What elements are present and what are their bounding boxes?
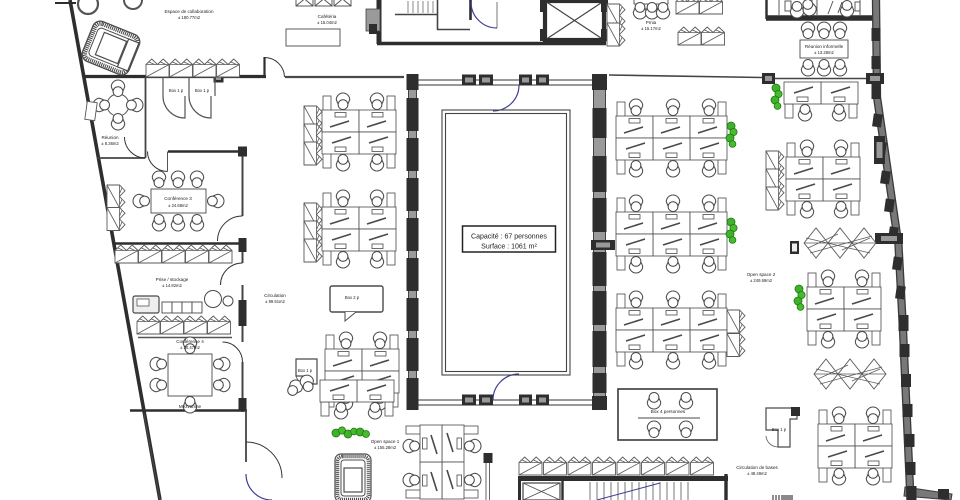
svg-text:Circulation de bases: Circulation de bases [736, 465, 778, 470]
svg-text:± 89.51m2: ± 89.51m2 [265, 299, 285, 304]
svg-text:Conférence 3: Conférence 3 [164, 196, 192, 201]
svg-text:Box 1 p: Box 1 p [195, 88, 210, 93]
svg-text:± 20.47m2: ± 20.47m2 [180, 345, 200, 350]
svg-text:± 15.17m2: ± 15.17m2 [641, 26, 661, 31]
svg-text:Box 4 personnes: Box 4 personnes [651, 409, 686, 414]
svg-text:Cafétéria: Cafétéria [318, 14, 337, 19]
svg-text:Surface : 1061 m²: Surface : 1061 m² [481, 244, 537, 251]
svg-text:Pmia: Pmia [646, 20, 657, 25]
svg-text:Box 1 p: Box 1 p [169, 88, 184, 93]
svg-text:Réunion informelle: Réunion informelle [805, 44, 844, 49]
svg-text:± 48.49m2: ± 48.49m2 [747, 471, 767, 476]
svg-text:Conférence 4: Conférence 4 [176, 339, 204, 344]
svg-text:± 180.77m2: ± 180.77m2 [178, 15, 201, 20]
svg-text:Box 1 p: Box 1 p [772, 427, 787, 432]
svg-text:Open space 1: Open space 1 [371, 439, 400, 444]
svg-text:Box 1 p: Box 1 p [298, 368, 313, 373]
svg-text:Open space 2: Open space 2 [747, 272, 776, 277]
svg-text:Réunion: Réunion [101, 135, 119, 140]
svg-text:Circulation: Circulation [264, 293, 286, 298]
svg-text:± 24.68m2: ± 24.68m2 [168, 203, 188, 208]
svg-text:± 8.36m2: ± 8.36m2 [101, 141, 119, 146]
svg-text:± 13.28m2: ± 13.28m2 [814, 50, 834, 55]
svg-text:± 155.28m2: ± 155.28m2 [374, 445, 397, 450]
svg-text:Mezzanine: Mezzanine [179, 404, 202, 409]
svg-text:Prise / stockage: Prise / stockage [156, 277, 189, 282]
svg-text:Capacité : 67 personnes: Capacité : 67 personnes [471, 234, 547, 241]
svg-text:Espace de collaboration: Espace de collaboration [164, 9, 213, 14]
svg-text:Box 2 p: Box 2 p [345, 295, 360, 300]
svg-text:± 14.82m2: ± 14.82m2 [162, 283, 182, 288]
svg-text:± 15.04m2: ± 15.04m2 [317, 20, 337, 25]
svg-text:± 249.59m2: ± 249.59m2 [750, 278, 773, 283]
